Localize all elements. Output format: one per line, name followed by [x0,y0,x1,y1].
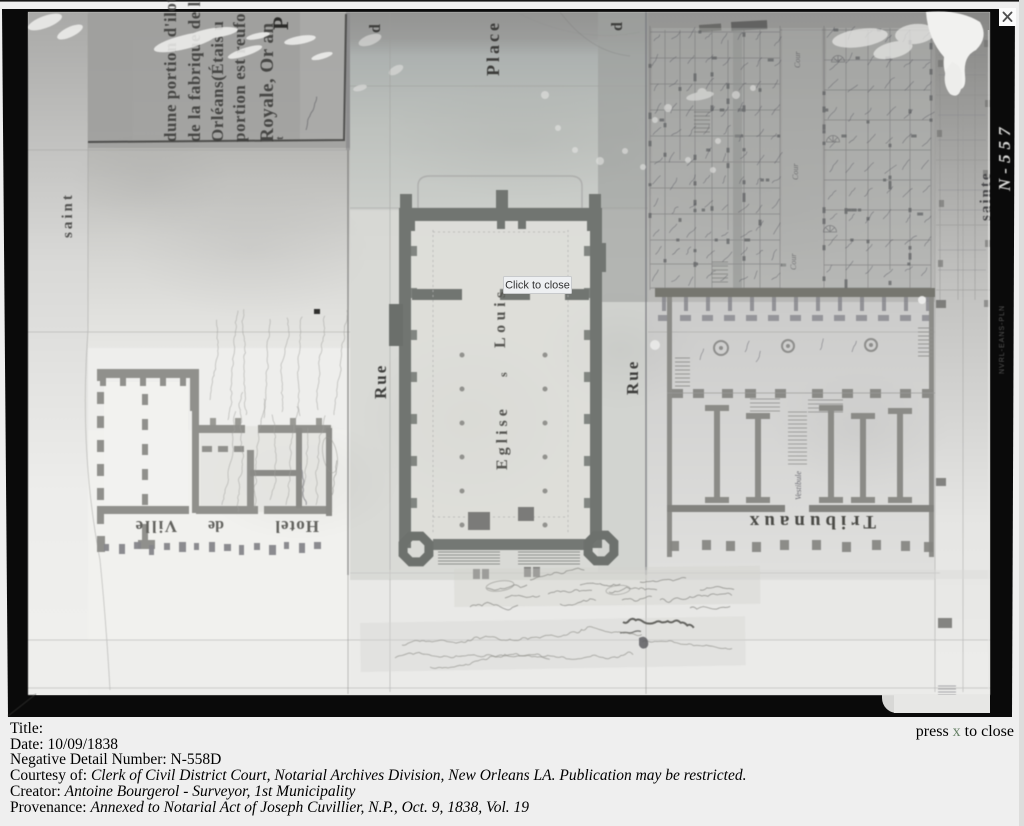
svg-text:Hotel: Hotel [274,517,319,536]
svg-text:P: P [268,17,293,30]
svg-text:saint: saint [60,192,76,238]
svg-text:d: d [367,24,384,33]
svg-text:Louis: Louis [492,287,509,348]
svg-text:dune portion d'ilot: dune portion d'ilot [161,0,180,142]
svg-text:Ville: Ville [134,517,177,536]
svg-text:s: s [496,372,510,377]
svg-text:Rue: Rue [623,360,642,395]
svg-text:NVRL-EANS-PLN: NVRL-EANS-PLN [999,305,1006,374]
svg-text:N-557: N-557 [995,123,1014,192]
svg-text:Rue: Rue [371,364,390,399]
svg-text:d: d [609,22,626,31]
svg-text:Royale, Or an: Royale, Or an [257,22,278,142]
svg-text:Eglise: Eglise [494,405,511,470]
svg-text:Vestibule: Vestibule [794,471,803,500]
svg-text:t: t [274,136,286,140]
svg-text:Cour: Cour [791,163,800,180]
svg-text:Place: Place [483,20,503,76]
svg-text:Tribunaux: Tribunaux [745,511,876,532]
svg-text:Cour: Cour [793,51,802,68]
svg-text:Cour: Cour [789,253,798,270]
svg-text:de la fabrique de l: de la fabrique de l [185,1,204,142]
svg-text:de: de [208,517,224,534]
svg-text:sainte: sainte [978,172,994,222]
svg-text:Click to close: Click to close [505,280,570,292]
